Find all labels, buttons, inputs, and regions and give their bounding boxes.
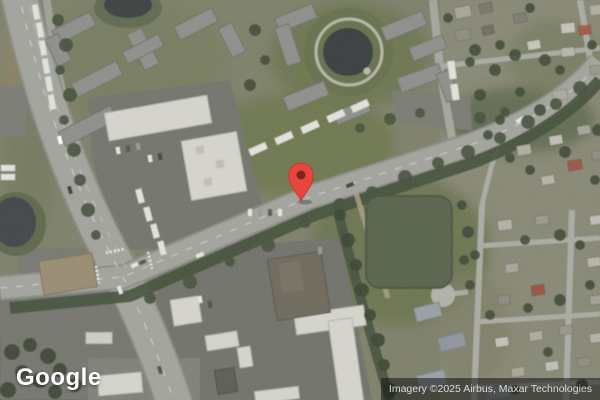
map-viewport[interactable]: Google Imagery ©2025 Airbus, Maxar Techn… [0,0,600,400]
attribution-bar: Imagery ©2025 Airbus, Maxar Technologies [381,378,600,400]
attribution-text: Imagery ©2025 Airbus, Maxar Technologies [389,383,592,395]
pin-dot [297,171,306,180]
satellite-canvas[interactable] [0,0,600,400]
google-logo[interactable]: Google [16,364,102,392]
grain-overlay [0,0,600,400]
